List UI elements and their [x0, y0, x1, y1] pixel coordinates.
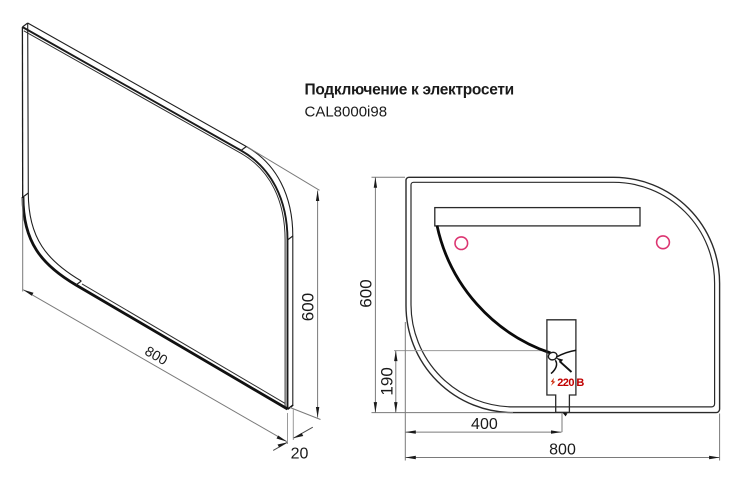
svg-text:220 В: 220 В: [557, 377, 584, 389]
svg-text:800: 800: [549, 441, 576, 458]
svg-text:600: 600: [357, 279, 376, 307]
svg-text:CAL8000i98: CAL8000i98: [305, 104, 388, 121]
svg-text:600: 600: [299, 293, 318, 321]
svg-text:Подключение к электросети: Подключение к электросети: [305, 81, 514, 98]
svg-text:400: 400: [471, 416, 498, 433]
svg-text:20: 20: [291, 445, 309, 462]
svg-text:190: 190: [377, 367, 396, 395]
